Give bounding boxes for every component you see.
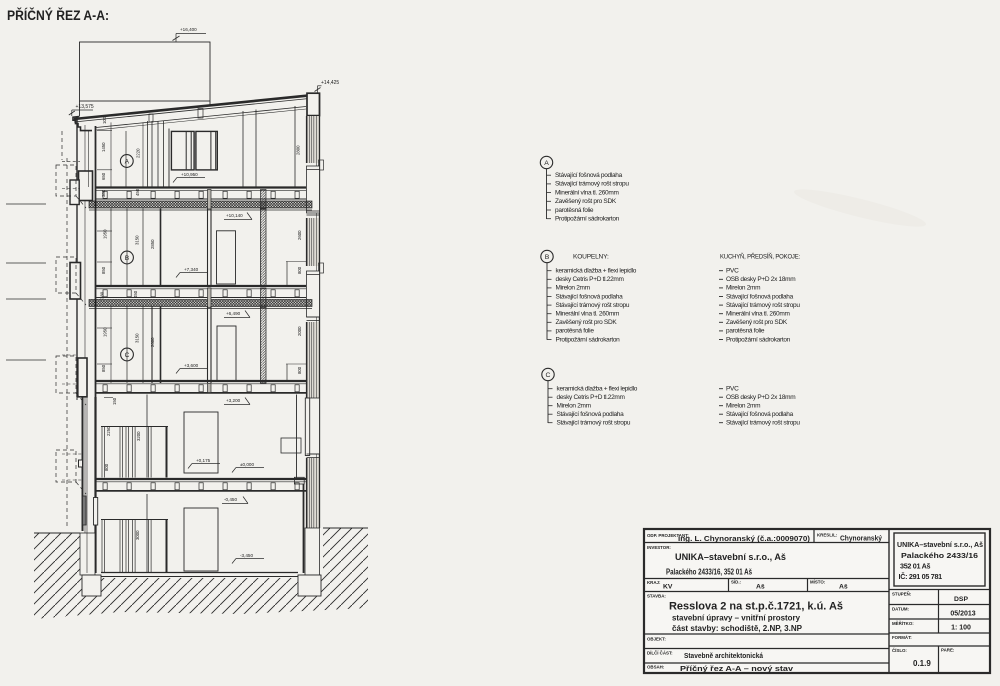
svg-text:Protipožární sádrokarton: Protipožární sádrokarton <box>555 216 620 223</box>
svg-text:Stávající trámový rošt stropu: Stávající trámový rošt stropu <box>555 181 629 188</box>
svg-text:2850: 2850 <box>150 239 155 249</box>
svg-text:Zavěšený rošt pro SDK: Zavěšený rošt pro SDK <box>726 319 788 326</box>
svg-text:stavební úpravy – vnitřní pros: stavební úpravy – vnitřní prostory <box>672 614 801 623</box>
svg-text:1: 100: 1: 100 <box>951 625 971 632</box>
svg-text:+7,340: +7,340 <box>184 267 199 272</box>
svg-text:800: 800 <box>297 366 302 374</box>
svg-text:desky Cetris P+D tl.22mm: desky Cetris P+D tl.22mm <box>557 394 625 401</box>
svg-text:Minerální vlna tl. 260mm: Minerální vlna tl. 260mm <box>726 311 790 318</box>
svg-text:Příčný řez A-A – nový stav: Příčný řez A-A – nový stav <box>680 664 793 673</box>
svg-text:Stávající trámový rošt stropu: Stávající trámový rošt stropu <box>726 420 800 427</box>
svg-text:FORMÁT:: FORMÁT: <box>892 635 912 640</box>
svg-text:Palackého 2433/16: Palackého 2433/16 <box>901 551 978 560</box>
svg-text:Zavěšený rošt pro SDK: Zavěšený rošt pro SDK <box>556 319 618 326</box>
svg-text:Mirelon 2mm: Mirelon 2mm <box>726 285 760 292</box>
svg-text:část stavby: schodiště, 2.NP,: část stavby: schodiště, 2.NP, 3.NP <box>672 624 803 633</box>
svg-text:+0,175: +0,175 <box>196 458 211 463</box>
svg-text:UNIKA–stavební s.r.o., Aš: UNIKA–stavební s.r.o., Aš <box>897 540 983 549</box>
svg-text:100: 100 <box>102 116 107 124</box>
svg-text:Mirelon 2mm: Mirelon 2mm <box>556 285 590 292</box>
svg-text:Stávající fošnová podlaha: Stávající fošnová podlaha <box>556 293 624 300</box>
svg-text:+10,140: +10,140 <box>226 213 243 218</box>
svg-text:3000: 3000 <box>135 530 140 540</box>
svg-text:B: B <box>125 255 130 262</box>
svg-text:+13,575: +13,575 <box>76 104 94 110</box>
svg-text:OSB desky P+D 2x 18mm: OSB desky P+D 2x 18mm <box>726 394 795 401</box>
svg-text:150: 150 <box>112 397 117 405</box>
svg-text:desky Cetris P+D tl.22mm: desky Cetris P+D tl.22mm <box>556 276 624 283</box>
svg-text:Stavebně architektonická: Stavebně architektonická <box>684 651 764 660</box>
svg-text:KOUPELNY:: KOUPELNY: <box>573 254 609 261</box>
svg-text:352 01 Aš: 352 01 Aš <box>900 562 931 571</box>
svg-text:Mirelon 2mm: Mirelon 2mm <box>557 403 591 410</box>
svg-text:OBJEKT:: OBJEKT: <box>647 637 666 642</box>
svg-text:450: 450 <box>135 188 140 196</box>
svg-text:STUPEŇ:: STUPEŇ: <box>892 592 912 597</box>
svg-text:Stávající trámový rošt stropu: Stávající trámový rošt stropu <box>726 302 800 309</box>
svg-text:keramická dlažba + flexi lepid: keramická dlažba + flexi lepidlo <box>557 386 638 393</box>
svg-text:INVESTOR:: INVESTOR: <box>647 545 671 550</box>
svg-text:PVC: PVC <box>726 268 739 275</box>
svg-text:A: A <box>544 160 549 167</box>
svg-text:2220: 2220 <box>136 148 141 158</box>
svg-text:C: C <box>125 352 130 359</box>
svg-text:Aš: Aš <box>756 584 765 591</box>
svg-text:Minerální vlna tl. 260mm: Minerální vlna tl. 260mm <box>556 311 620 318</box>
svg-text:Protipožární sádrokarton: Protipožární sádrokarton <box>556 336 621 343</box>
svg-text:380: 380 <box>101 189 106 197</box>
svg-text:2600: 2600 <box>297 230 302 240</box>
svg-text:Aš: Aš <box>839 584 848 591</box>
svg-text:850: 850 <box>101 266 106 274</box>
svg-text:A: A <box>125 158 130 165</box>
svg-text:MĚŘÍTKO:: MĚŘÍTKO: <box>892 621 914 626</box>
svg-text:STAVBA:: STAVBA: <box>647 594 666 599</box>
svg-text:+6,490: +6,490 <box>226 311 241 316</box>
svg-text:SÍD.:: SÍD.: <box>731 580 742 585</box>
svg-text:800: 800 <box>297 266 302 274</box>
svg-text:KRAJ:: KRAJ: <box>647 580 661 585</box>
svg-text:Stávající fošnová podlaha: Stávající fošnová podlaha <box>555 172 623 179</box>
svg-text:3150: 3150 <box>135 235 140 245</box>
svg-text:Stávající fošnová podlaha: Stávající fošnová podlaha <box>557 411 625 418</box>
svg-text:IČ: 291 05 781: IČ: 291 05 781 <box>899 572 943 581</box>
svg-text:+16,400: +16,400 <box>180 27 197 32</box>
svg-text:Chynoranský: Chynoranský <box>840 534 882 543</box>
svg-text:OBSAH:: OBSAH: <box>647 665 665 670</box>
svg-text:+10,950: +10,950 <box>181 172 198 177</box>
svg-text:PŘÍČNÝ ŘEZ A-A:: PŘÍČNÝ ŘEZ A-A: <box>7 8 109 23</box>
svg-text:KRESLIL:: KRESLIL: <box>817 533 838 538</box>
svg-text:UNIKA–stavební s.r.o., Aš: UNIKA–stavební s.r.o., Aš <box>675 552 786 563</box>
svg-text:PARE:: PARE: <box>941 648 955 653</box>
svg-text:450: 450 <box>133 290 138 298</box>
svg-text:1950: 1950 <box>103 327 108 337</box>
svg-text:KV: KV <box>663 584 673 591</box>
svg-text:380: 380 <box>100 291 105 299</box>
svg-text:KUCHYŇ, PŘEDSÍŇ, POKOJE:: KUCHYŇ, PŘEDSÍŇ, POKOJE: <box>720 252 800 261</box>
svg-text:Palackého 2433/16, 352 01 Aš: Palackého 2433/16, 352 01 Aš <box>666 568 752 577</box>
svg-text:C: C <box>546 372 551 379</box>
svg-text:2800: 2800 <box>296 145 301 155</box>
svg-text:Stávající fošnová podlaha: Stávající fošnová podlaha <box>726 293 794 300</box>
svg-text:OSB desky P+D 2x 18mm: OSB desky P+D 2x 18mm <box>726 276 795 283</box>
svg-text:Zavěšený rošt pro SDK: Zavěšený rošt pro SDK <box>555 198 617 205</box>
svg-text:DSP: DSP <box>954 596 968 603</box>
svg-text:1450: 1450 <box>101 142 106 152</box>
svg-text:Stávající trámový rošt stropu: Stávající trámový rošt stropu <box>557 420 631 427</box>
svg-text:parotěsná folie: parotěsná folie <box>556 328 595 335</box>
svg-text:DÍLČÍ ČÁST:: DÍLČÍ ČÁST: <box>647 651 673 656</box>
svg-text:650: 650 <box>101 172 106 180</box>
svg-text:0.1.9: 0.1.9 <box>913 659 931 668</box>
svg-text:keramická dlažba + flexi lepid: keramická dlažba + flexi lepidlo <box>556 268 637 275</box>
svg-text:3200: 3200 <box>136 431 141 441</box>
svg-text:2000: 2000 <box>297 326 302 336</box>
svg-text:2600: 2600 <box>150 337 155 347</box>
svg-text:+3,200: +3,200 <box>226 398 241 403</box>
svg-text:Protipožární sádrokarton: Protipožární sádrokarton <box>726 336 791 343</box>
svg-text:Resslova 2 na st.p.č.1721, k.ú: Resslova 2 na st.p.č.1721, k.ú. Aš <box>669 601 843 613</box>
svg-text:-3,450: -3,450 <box>240 553 253 558</box>
svg-text:+14,425: +14,425 <box>321 80 339 86</box>
svg-text:Minerální vlna tl. 260mm: Minerální vlna tl. 260mm <box>555 189 619 196</box>
svg-text:+3,600: +3,600 <box>184 363 199 368</box>
svg-text:Mirelon 2mm: Mirelon 2mm <box>726 403 760 410</box>
svg-text:ing. L. Chynoranský (č.a.:0009: ing. L. Chynoranský (č.a.:0009070) <box>678 534 811 543</box>
svg-text:Stávající fošnová podlaha: Stávající fošnová podlaha <box>726 411 794 418</box>
svg-text:800: 800 <box>104 463 109 471</box>
svg-text:3150: 3150 <box>135 333 140 343</box>
svg-text:DATUM:: DATUM: <box>892 607 910 612</box>
svg-text:ČÍSLO:: ČÍSLO: <box>892 648 907 653</box>
svg-text:B: B <box>545 254 550 261</box>
svg-text:parotěsná folie: parotěsná folie <box>555 207 594 214</box>
svg-text:2250: 2250 <box>106 426 111 436</box>
svg-text:05/2013: 05/2013 <box>950 611 975 618</box>
svg-text:parotěsná folie: parotěsná folie <box>726 328 765 335</box>
svg-text:±0,000: ±0,000 <box>240 462 254 467</box>
svg-text:1950: 1950 <box>103 229 108 239</box>
svg-text:-0,450: -0,450 <box>224 497 237 502</box>
svg-text:PVC: PVC <box>726 386 739 393</box>
svg-text:850: 850 <box>101 364 106 372</box>
svg-text:MÍSTO:: MÍSTO: <box>810 580 826 585</box>
svg-text:Stávající trámový rošt stropu: Stávající trámový rošt stropu <box>556 302 630 309</box>
